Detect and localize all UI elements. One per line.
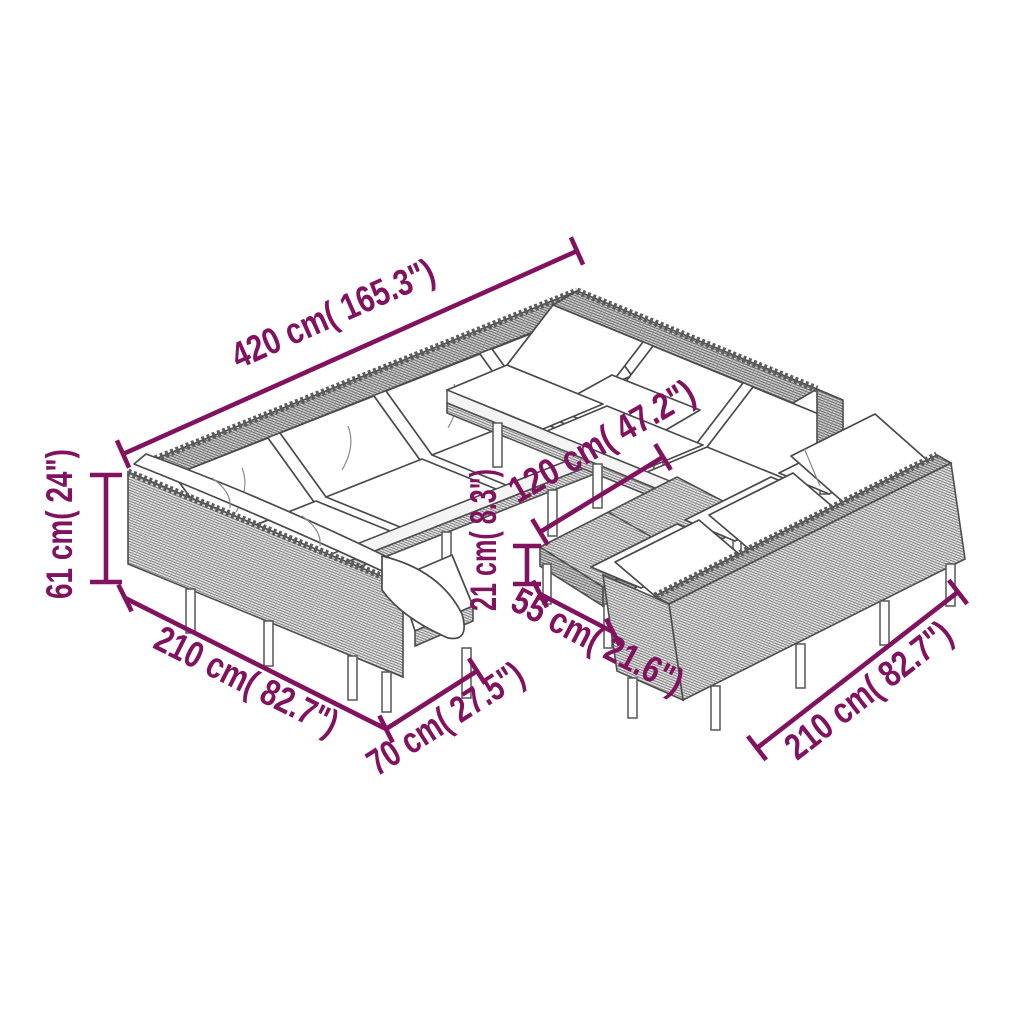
- sofa-leg: [628, 678, 637, 718]
- sofa-leg: [711, 686, 720, 730]
- sofa-leg: [348, 656, 357, 700]
- sofa-leg: [880, 601, 889, 645]
- dimension-diagram-page: 420 cm( 165.3") 61 cm( 24") 210 cm( 82.7…: [0, 0, 1024, 1024]
- dimension-tick: [748, 736, 766, 760]
- sofa-leg: [264, 621, 273, 666]
- sofa-leg: [186, 589, 195, 633]
- sofa-leg: [382, 672, 391, 712]
- dimension-label: 61 cm( 24"): [39, 449, 80, 599]
- dimension-seat-back-height: 61 cm( 24"): [39, 449, 122, 599]
- sofa-leg: [493, 423, 502, 467]
- dimension-label: 21 cm( 8.3"): [463, 469, 504, 611]
- sofa-leg: [796, 644, 805, 688]
- product-dimension-diagram: 420 cm( 165.3") 61 cm( 24") 210 cm( 82.7…: [0, 0, 1024, 1024]
- dimension-tick: [532, 519, 548, 545]
- sofa-leg: [548, 490, 557, 536]
